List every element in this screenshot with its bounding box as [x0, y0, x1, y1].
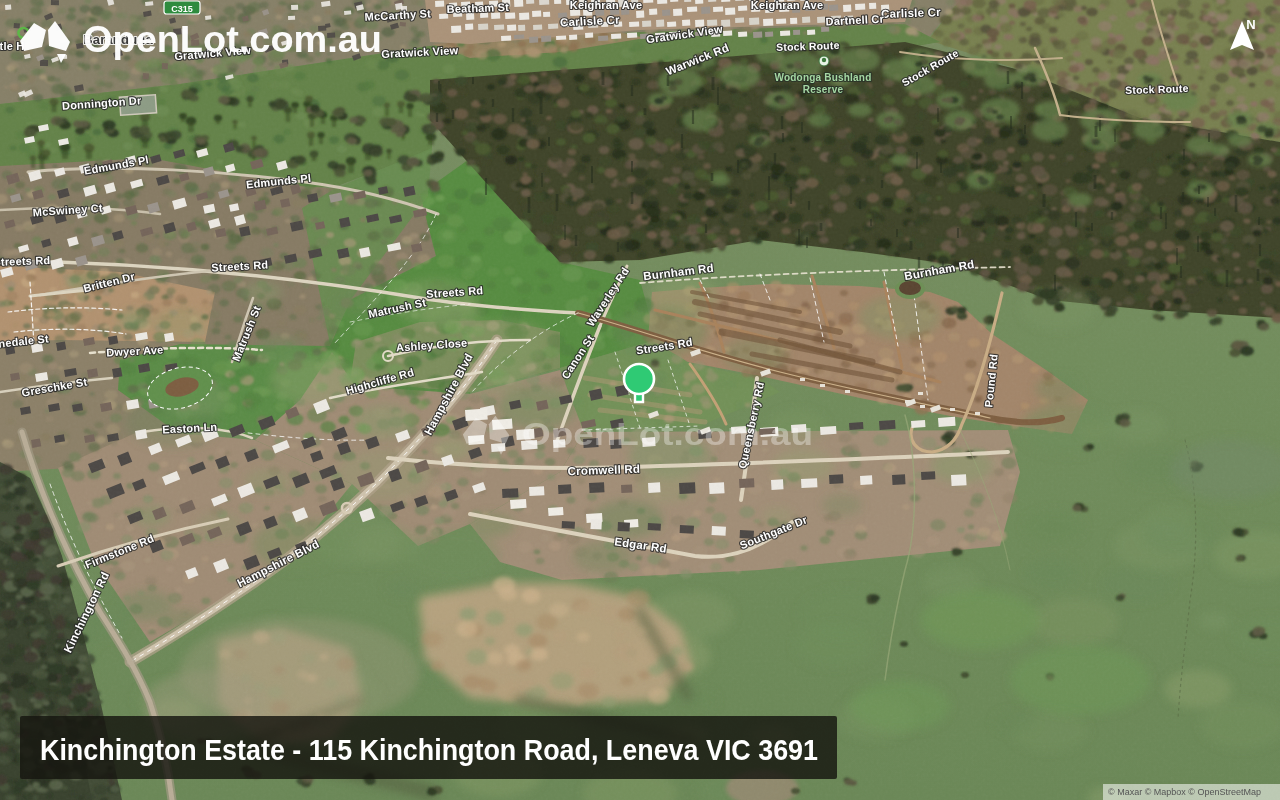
svg-text:Reserve: Reserve	[803, 84, 844, 95]
svg-text:Carlisle Cr: Carlisle Cr	[881, 6, 941, 20]
svg-text:Streets Rd: Streets Rd	[0, 254, 51, 268]
svg-text:Beatham St: Beatham St	[446, 1, 509, 15]
svg-text:N: N	[1246, 17, 1255, 32]
svg-text:C315: C315	[171, 4, 193, 14]
svg-text:Keighran Ave: Keighran Ave	[570, 0, 643, 11]
svg-text:OpenLot.com.au: OpenLot.com.au	[522, 417, 813, 452]
svg-text:Keighran Ave: Keighran Ave	[751, 0, 824, 11]
svg-text:Wodonga Bushland: Wodonga Bushland	[775, 72, 872, 83]
svg-text:Kinchington Estate - 115 Kinch: Kinchington Estate - 115 Kinchington Roa…	[40, 733, 818, 766]
svg-text:OpenLot.com.au: OpenLot.com.au	[83, 19, 382, 60]
svg-text:Cromwell Rd: Cromwell Rd	[567, 463, 640, 478]
svg-text:Stock Route: Stock Route	[776, 39, 840, 53]
svg-text:© Maxar © Mapbox © OpenStreetM: © Maxar © Mapbox © OpenStreetMap	[1108, 787, 1261, 797]
svg-text:Stock Route: Stock Route	[1125, 82, 1189, 96]
